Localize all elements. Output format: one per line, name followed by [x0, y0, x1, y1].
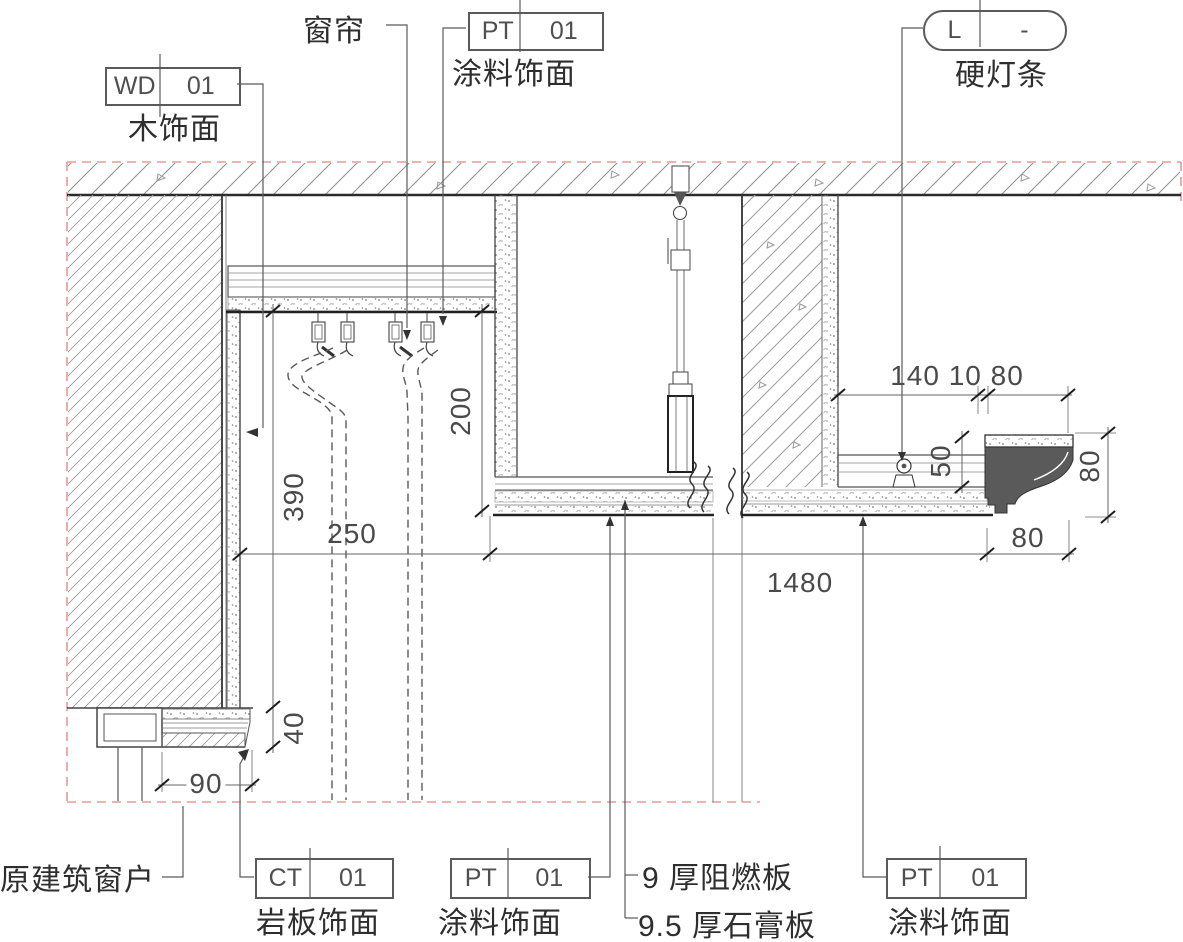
bulkhead-board: [495, 195, 517, 477]
label-paint-finish-bottom-center: 涂料饰面: [438, 898, 562, 942]
tag-ct-01-code: CT: [257, 864, 314, 893]
label-paint-finish-bottom-right: 涂料饰面: [888, 898, 1012, 942]
tag-pt-01-bc-num: 01: [510, 864, 589, 893]
tag-wd-01-code: WD: [107, 72, 162, 101]
note-gypsum-board: 9.5 厚石膏板: [638, 901, 816, 942]
tag-pt-01-br-num: 01: [946, 864, 1025, 893]
ceiling-layers-left: [493, 477, 714, 515]
dim-200: 200: [445, 386, 477, 436]
curtain-drape: [288, 348, 438, 800]
curtain-box-top-board: [226, 266, 497, 312]
dim-80-horizontal: 80: [1011, 522, 1044, 554]
dim-90: 90: [186, 768, 225, 800]
right-wall: [742, 195, 838, 518]
dim-1480: 1480: [767, 567, 833, 599]
tag-pt-01-top-code: PT: [470, 17, 525, 46]
dim-250: 250: [327, 518, 377, 550]
tag-light-strip-num: -: [984, 16, 1065, 45]
label-wood-finish: 木饰面: [128, 104, 221, 148]
ceiling-hanger: [668, 166, 693, 472]
tag-ct-01-num: 01: [314, 864, 392, 893]
note-curtain: 窗帘: [303, 6, 365, 50]
dim-140-10-80: 140 10 80: [890, 360, 1024, 392]
tag-pt-01-top-num: 01: [525, 17, 602, 46]
dim-80-vertical: 80: [1074, 449, 1106, 482]
label-paint-finish-top: 涂料饰面: [452, 49, 576, 93]
tag-wd-01: WD 01: [105, 67, 241, 106]
dim-40: 40: [278, 711, 310, 744]
crown-moulding: [985, 435, 1073, 513]
ceiling-detail-drawing: WD 01 木饰面 PT 01 涂料饰面 L - 硬灯条 CT 01 岩板饰面 …: [0, 0, 1183, 942]
label-stone-slab-finish: 岩板饰面: [256, 898, 380, 942]
tag-ct-01: CT 01: [255, 858, 394, 899]
left-wall: [67, 195, 253, 708]
note-original-window: 原建筑窗户: [0, 855, 155, 899]
tag-pt-01-bottom-center: PT 01: [450, 858, 591, 899]
tag-pt-01-top: PT 01: [468, 12, 604, 51]
structural-slab: [67, 163, 1181, 195]
tag-pt-01-bc-code: PT: [452, 864, 510, 893]
tag-light-strip-code: L: [925, 16, 984, 45]
tag-pt-01-br-code: PT: [888, 864, 946, 893]
tag-wd-01-num: 01: [162, 72, 239, 101]
label-light-strip: 硬灯条: [955, 50, 1048, 94]
tag-light-strip: L -: [923, 10, 1067, 51]
wood-finish-panel: [227, 310, 240, 708]
window-and-sill: [97, 708, 250, 801]
note-flame-retardant-board: 9 厚阻燃板: [642, 853, 793, 897]
leader-lines: [160, 0, 980, 918]
tag-pt-01-bottom-right: PT 01: [886, 858, 1027, 899]
dim-50: 50: [925, 444, 957, 477]
dim-390: 390: [278, 472, 310, 522]
